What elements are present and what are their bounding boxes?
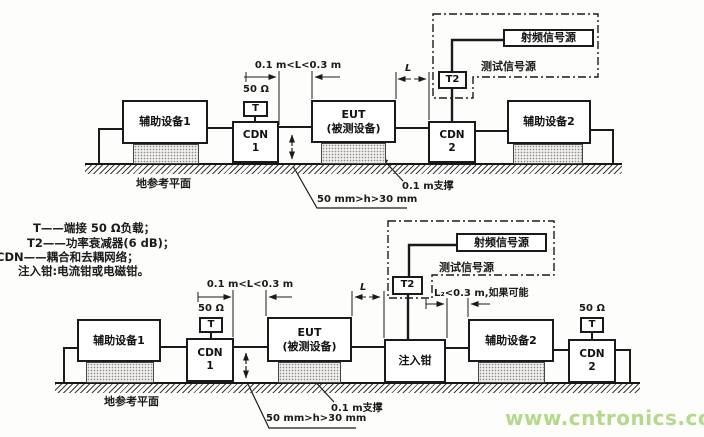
load-50ohm-label: 50 Ω: [575, 303, 609, 314]
cable-height-label: 50 mm>h>30 mm: [317, 194, 417, 205]
cable-length-dimension: 0.1 m<L<0.3 m: [252, 60, 344, 71]
ground-reference-plane: [85, 163, 622, 174]
ground-plane-label: 地参考平面: [136, 175, 191, 191]
injection-clamp-box: 注入钳: [384, 339, 446, 383]
termination-t-box: T: [580, 317, 604, 333]
termination-t-box: T: [243, 101, 268, 117]
emc-test-setup-figure: 辅助设备1 CDN 1 T 50 Ω EUT (被测设备) CDN 2 辅助设备…: [0, 0, 704, 437]
ground-plane-label: 地参考平面: [104, 393, 159, 409]
aux-equipment1-box: 辅助设备1: [122, 100, 208, 144]
dimension-L-label: L: [405, 63, 411, 74]
aux-equipment2-box: 辅助设备2: [468, 319, 554, 362]
load-50ohm-label: 50 Ω: [239, 84, 273, 95]
rf-signal-source-box: 射频信号源: [503, 29, 594, 47]
cable-height-label: 50 mm>h>30 mm: [266, 413, 366, 424]
eut-box: EUT (被测设备): [267, 317, 352, 362]
dimension-L-label: L: [360, 282, 366, 293]
ground-reference-plane: [55, 382, 640, 393]
insulating-support: [513, 144, 583, 164]
aux-equipment2-box: 辅助设备2: [507, 100, 591, 144]
cable-length-dimension: 0.1 m<L<0.3 m: [202, 279, 298, 290]
attenuator-t2-box: T2: [438, 71, 467, 89]
insulating-support: [133, 144, 199, 164]
test-signal-source-label: 测试信号源: [481, 58, 536, 74]
legend-line-clamp: 注入钳:电流钳或电磁钳。: [18, 263, 149, 279]
aux-equipment1-box: 辅助设备1: [77, 319, 161, 362]
eut-box: EUT (被测设备): [311, 100, 396, 143]
cdn2-box: CDN 2: [428, 121, 476, 163]
insulating-support: [86, 362, 154, 383]
cdn1-box: CDN 1: [186, 338, 234, 382]
cdn1-box: CDN 1: [232, 121, 279, 163]
support-label: 0.1 m支撑: [402, 177, 454, 192]
watermark: www.cntronics.com: [505, 406, 704, 430]
termination-t-box: T: [199, 317, 223, 333]
insulating-support: [278, 362, 341, 383]
ground-strap-right: [616, 350, 630, 382]
ground-strap-left: [64, 348, 77, 382]
insulating-support: [478, 362, 545, 383]
cdn2-box: CDN 2: [568, 339, 616, 383]
support-label: 0.1 m支撑: [331, 399, 383, 414]
attenuator-t2-box: T2: [392, 276, 423, 295]
test-signal-source-label: 测试信号源: [439, 259, 494, 275]
insulating-support: [321, 143, 386, 164]
ground-strap-left: [99, 129, 122, 163]
rf-signal-source-box: 射频信号源: [456, 233, 547, 252]
legend-line-t: T——端接 50 Ω负载；: [33, 220, 155, 236]
ground-strap-right: [590, 130, 613, 163]
dimension-L2-label: L₂<0.3 m,如果可能: [434, 284, 529, 299]
load-50ohm-label: 50 Ω: [194, 303, 228, 314]
